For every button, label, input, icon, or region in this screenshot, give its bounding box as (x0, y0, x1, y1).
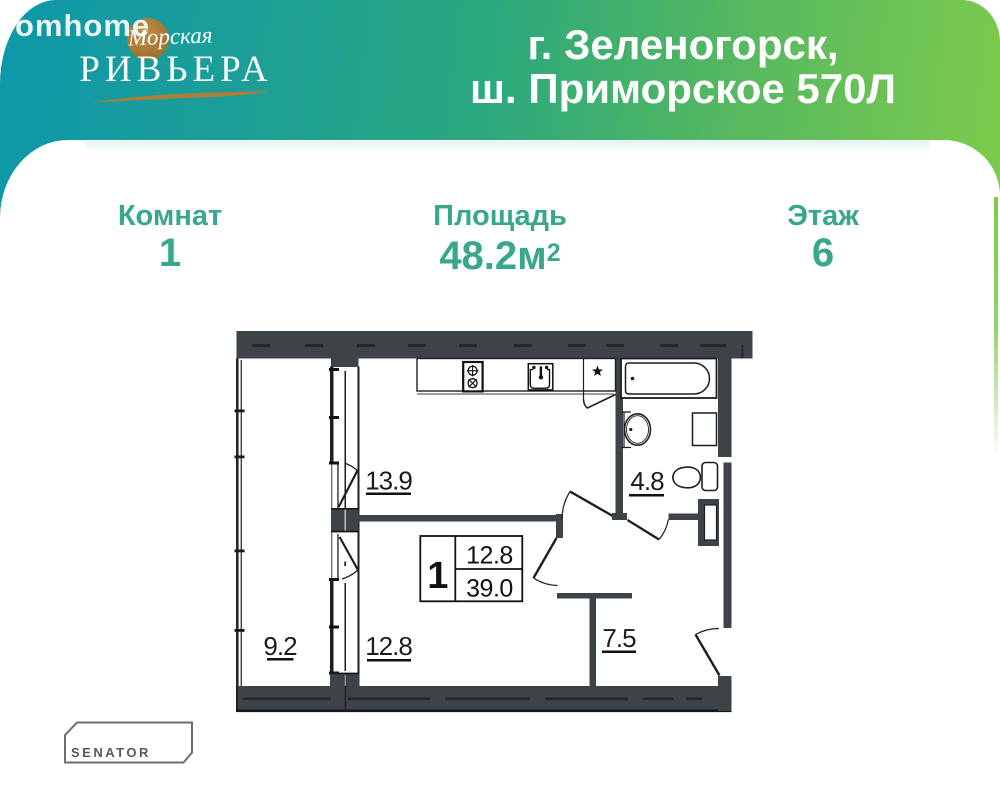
svg-text:1: 1 (427, 555, 448, 597)
svg-text:12.8: 12.8 (365, 631, 412, 661)
svg-text:SENATOR: SENATOR (71, 745, 151, 760)
svg-text:12.8: 12.8 (466, 542, 513, 570)
svg-text:9.2: 9.2 (263, 631, 297, 661)
svg-text:4.8: 4.8 (630, 466, 664, 496)
svg-text:39.0: 39.0 (466, 575, 513, 603)
svg-text:13.9: 13.9 (365, 466, 412, 496)
svg-text:7.5: 7.5 (602, 623, 636, 653)
